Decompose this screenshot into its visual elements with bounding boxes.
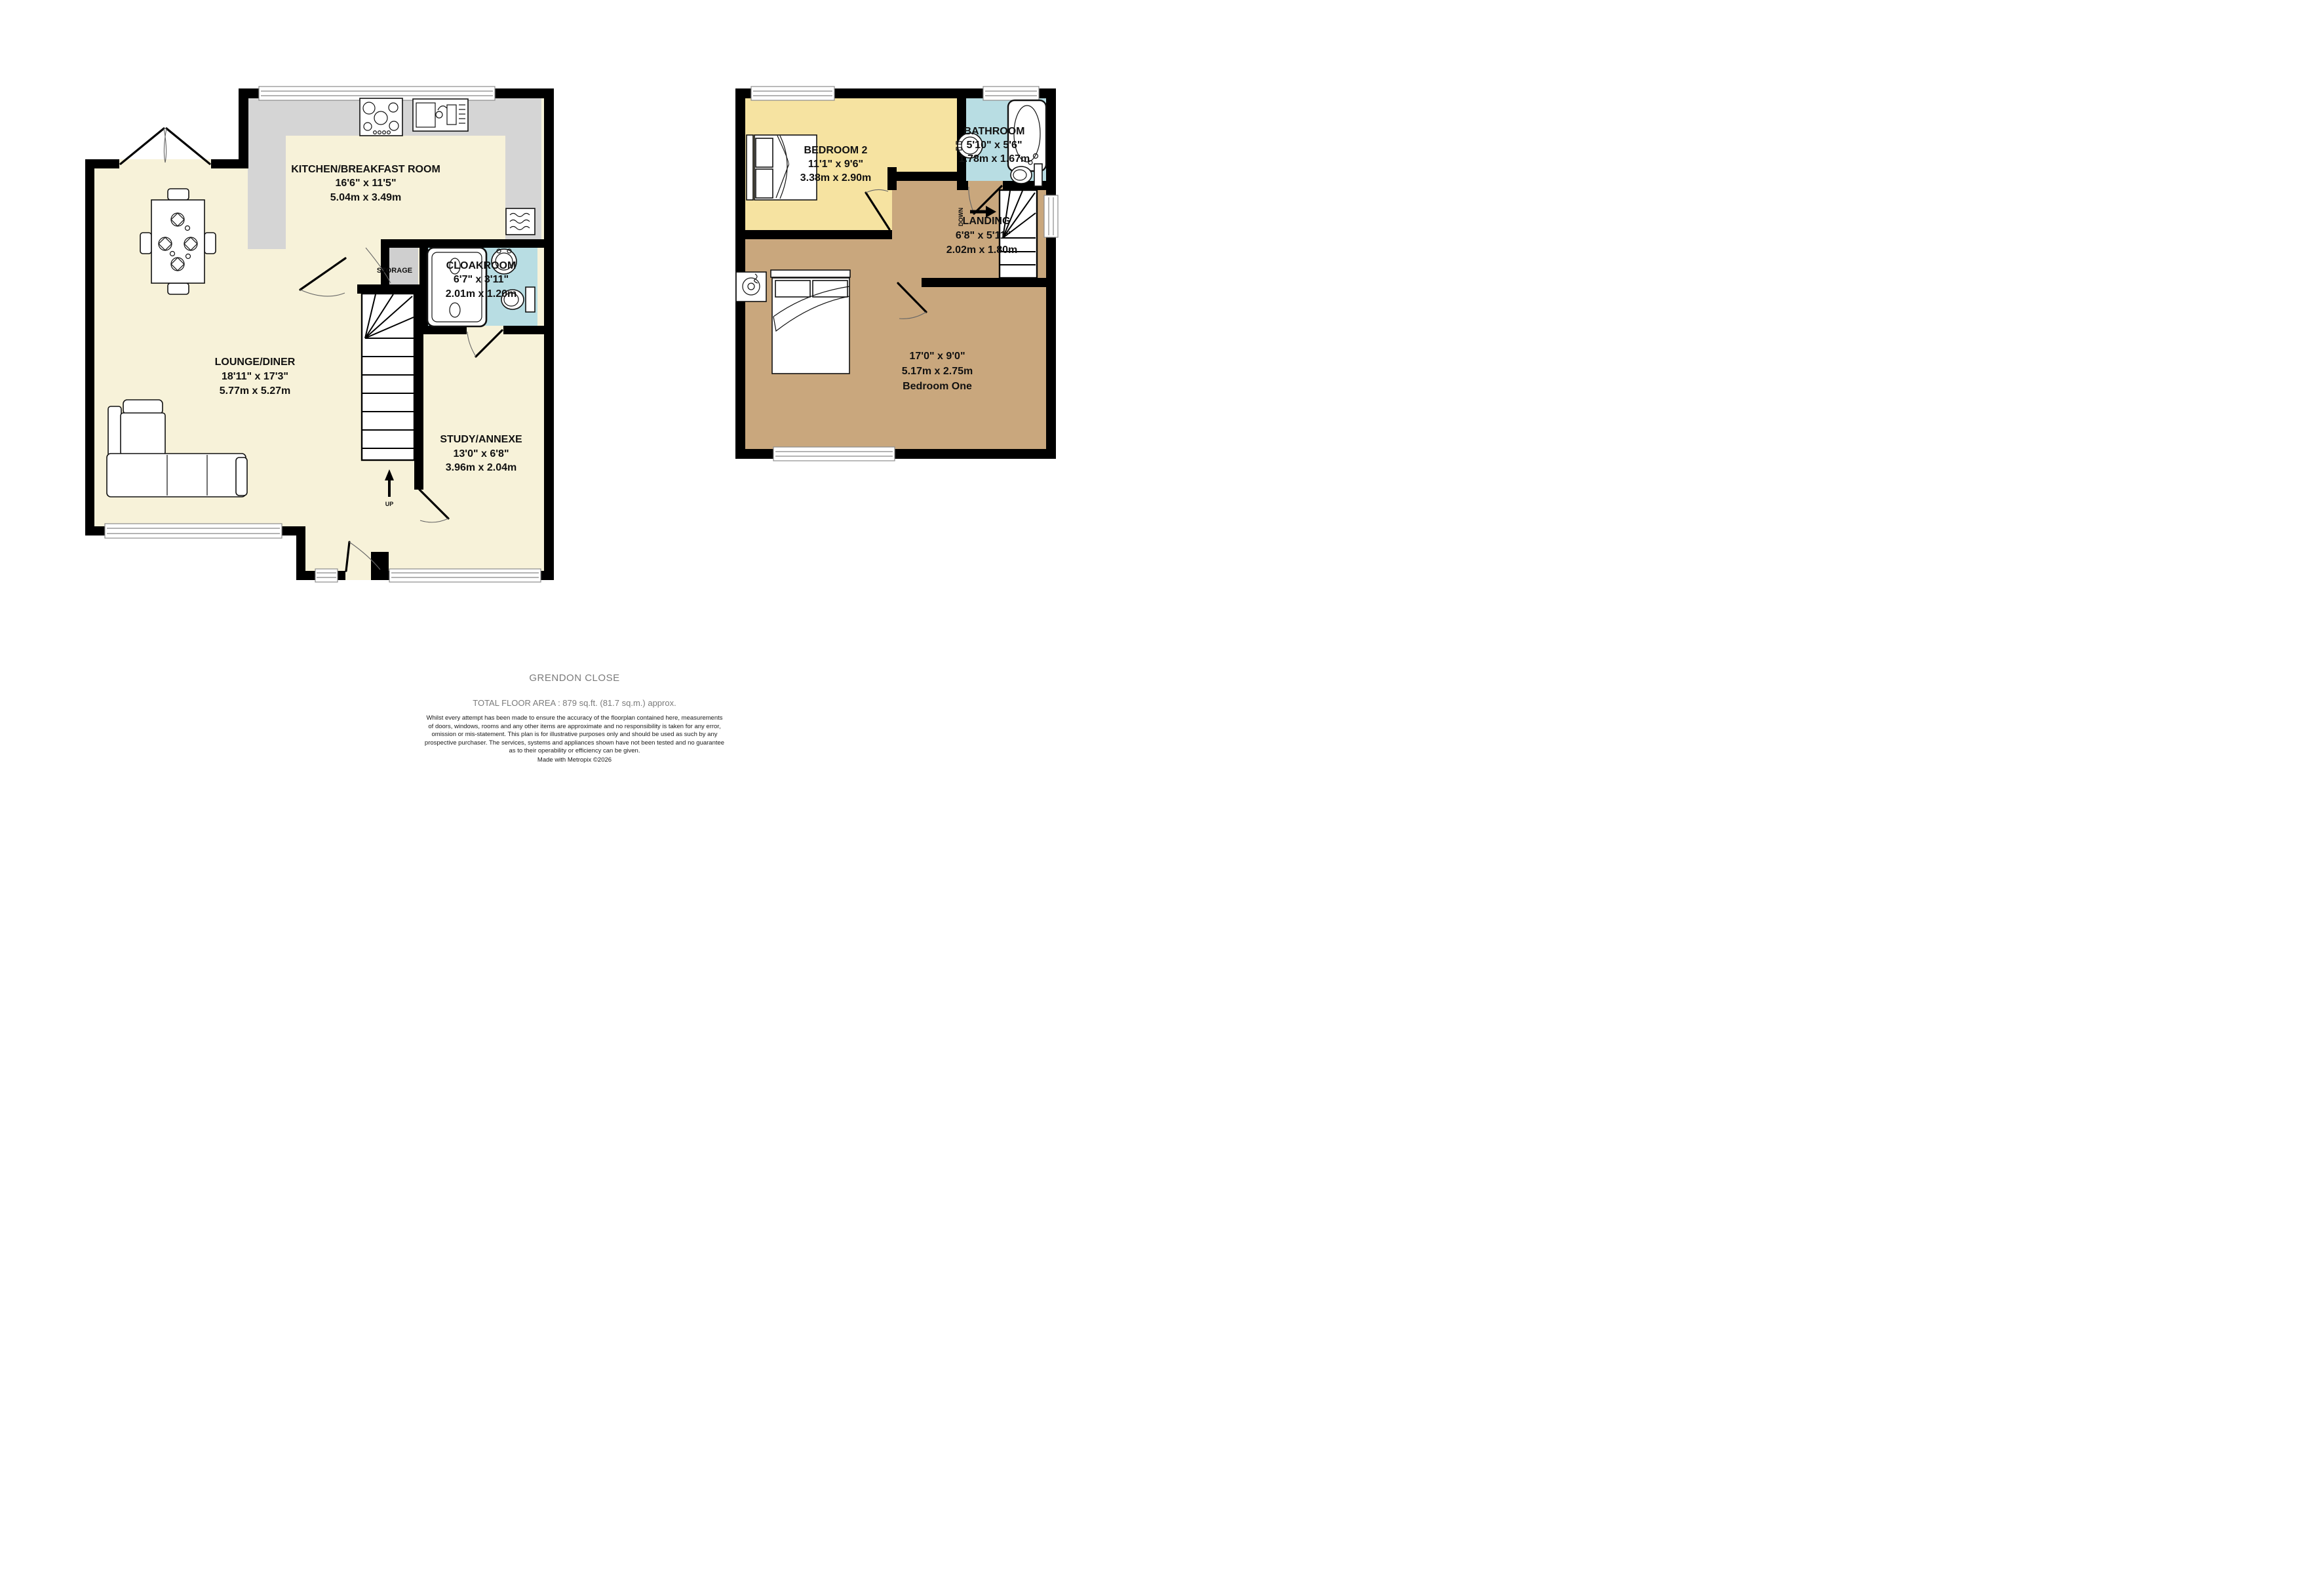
svg-text:2.02m x 1.80m: 2.02m x 1.80m: [946, 244, 1018, 256]
dining-table-icon: [140, 189, 216, 294]
svg-text:11'1" x 9'6": 11'1" x 9'6": [808, 159, 863, 170]
svg-text:18'11" x 17'3": 18'11" x 17'3": [222, 371, 288, 382]
svg-text:5.17m x 2.75m: 5.17m x 2.75m: [902, 366, 973, 377]
floorplan-canvas: UP: [0, 0, 1149, 663]
storage-label: STORAGE: [377, 267, 412, 275]
svg-text:5.04m x 3.49m: 5.04m x 3.49m: [330, 192, 402, 203]
floorplan-page: UP: [0, 0, 1149, 798]
svg-text:6'7" x 3'11": 6'7" x 3'11": [454, 274, 509, 285]
staircase-ground: [362, 294, 414, 460]
property-title: GRENDON CLOSE: [0, 672, 1149, 684]
storage-area: [389, 248, 418, 284]
svg-text:17'0" x 9'0": 17'0" x 9'0": [909, 351, 965, 362]
up-label: UP: [385, 501, 394, 507]
bathroom-window: [983, 87, 1039, 100]
svg-text:3.96m x 2.04m: 3.96m x 2.04m: [446, 462, 517, 473]
disclaimer-line: prospective purchaser. The services, sys…: [0, 739, 1149, 748]
lounge-window: [105, 524, 282, 538]
ground-floor-plan: UP: [85, 87, 554, 582]
bathroom-label: BATHROOM 5'10" x 5'6" 1.78m x 1.67m: [959, 126, 1030, 165]
svg-text:13'0" x 6'8": 13'0" x 6'8": [453, 448, 509, 459]
svg-text:3.38m x 2.90m: 3.38m x 2.90m: [800, 172, 872, 184]
total-floor-area: TOTAL FLOOR AREA : 879 sq.ft. (81.7 sq.m…: [0, 698, 1149, 708]
credit-line: Made with Metropix ©2026: [0, 756, 1149, 765]
shower-icon: [427, 248, 486, 326]
svg-text:5.77m x 5.27m: 5.77m x 5.27m: [220, 385, 291, 397]
bedroom1-bed-icon: [771, 270, 850, 374]
svg-text:16'6" x 11'5": 16'6" x 11'5": [335, 178, 396, 189]
bedroom2-window: [751, 87, 834, 100]
disclaimer-line: as to their operability or efficiency ca…: [0, 747, 1149, 756]
svg-text:LANDING: LANDING: [963, 216, 1011, 227]
footer: GRENDON CLOSE TOTAL FLOOR AREA : 879 sq.…: [0, 663, 1149, 764]
bedroom1-label: 17'0" x 9'0" 5.17m x 2.75m Bedroom One: [902, 351, 973, 392]
stairwell-window: [1044, 195, 1058, 237]
svg-text:CLOAKROOM: CLOAKROOM: [446, 260, 516, 271]
stove-icon: [360, 98, 402, 136]
kitchen-counter-left: [248, 136, 286, 249]
study-window: [389, 569, 541, 582]
svg-text:1.78m x 1.67m: 1.78m x 1.67m: [959, 153, 1030, 165]
first-floor-plan: DOWN: [735, 87, 1058, 461]
lounge-label: LOUNGE/DINER 18'11" x 17'3" 5.77m x 5.27…: [215, 357, 296, 397]
disclaimer-line: omission or mis-statement. This plan is …: [0, 731, 1149, 739]
svg-text:BATHROOM: BATHROOM: [964, 126, 1024, 137]
svg-text:2.01m x 1.20m: 2.01m x 1.20m: [446, 288, 517, 300]
svg-text:Bedroom One: Bedroom One: [903, 381, 972, 392]
cloakroom-label: CLOAKROOM 6'7" x 3'11" 2.01m x 1.20m: [446, 260, 517, 300]
svg-text:STUDY/ANNEXE: STUDY/ANNEXE: [440, 434, 522, 445]
svg-text:6'8" x 5'11": 6'8" x 5'11": [956, 230, 1011, 241]
bedroom2-label: BEDROOM 2 11'1" x 9'6" 3.38m x 2.90m: [800, 145, 872, 184]
disclaimer-line: Whilst every attempt has been made to en…: [0, 714, 1149, 723]
svg-text:5'10" x 5'6": 5'10" x 5'6": [966, 140, 1022, 151]
entrance-opening: [345, 571, 371, 580]
boiler-icon: [506, 208, 535, 235]
svg-text:LOUNGE/DINER: LOUNGE/DINER: [215, 357, 296, 368]
svg-text:KITCHEN/BREAKFAST ROOM: KITCHEN/BREAKFAST ROOM: [291, 164, 440, 175]
washing-machine-icon: [736, 272, 766, 302]
hall-window: [315, 569, 338, 582]
svg-text:BEDROOM 2: BEDROOM 2: [804, 145, 868, 156]
bedroom1-window: [773, 447, 895, 461]
kitchen-sink-icon: [413, 99, 468, 131]
patio-double-door: [121, 128, 210, 164]
disclaimer-line: of doors, windows, rooms and any other i…: [0, 723, 1149, 731]
